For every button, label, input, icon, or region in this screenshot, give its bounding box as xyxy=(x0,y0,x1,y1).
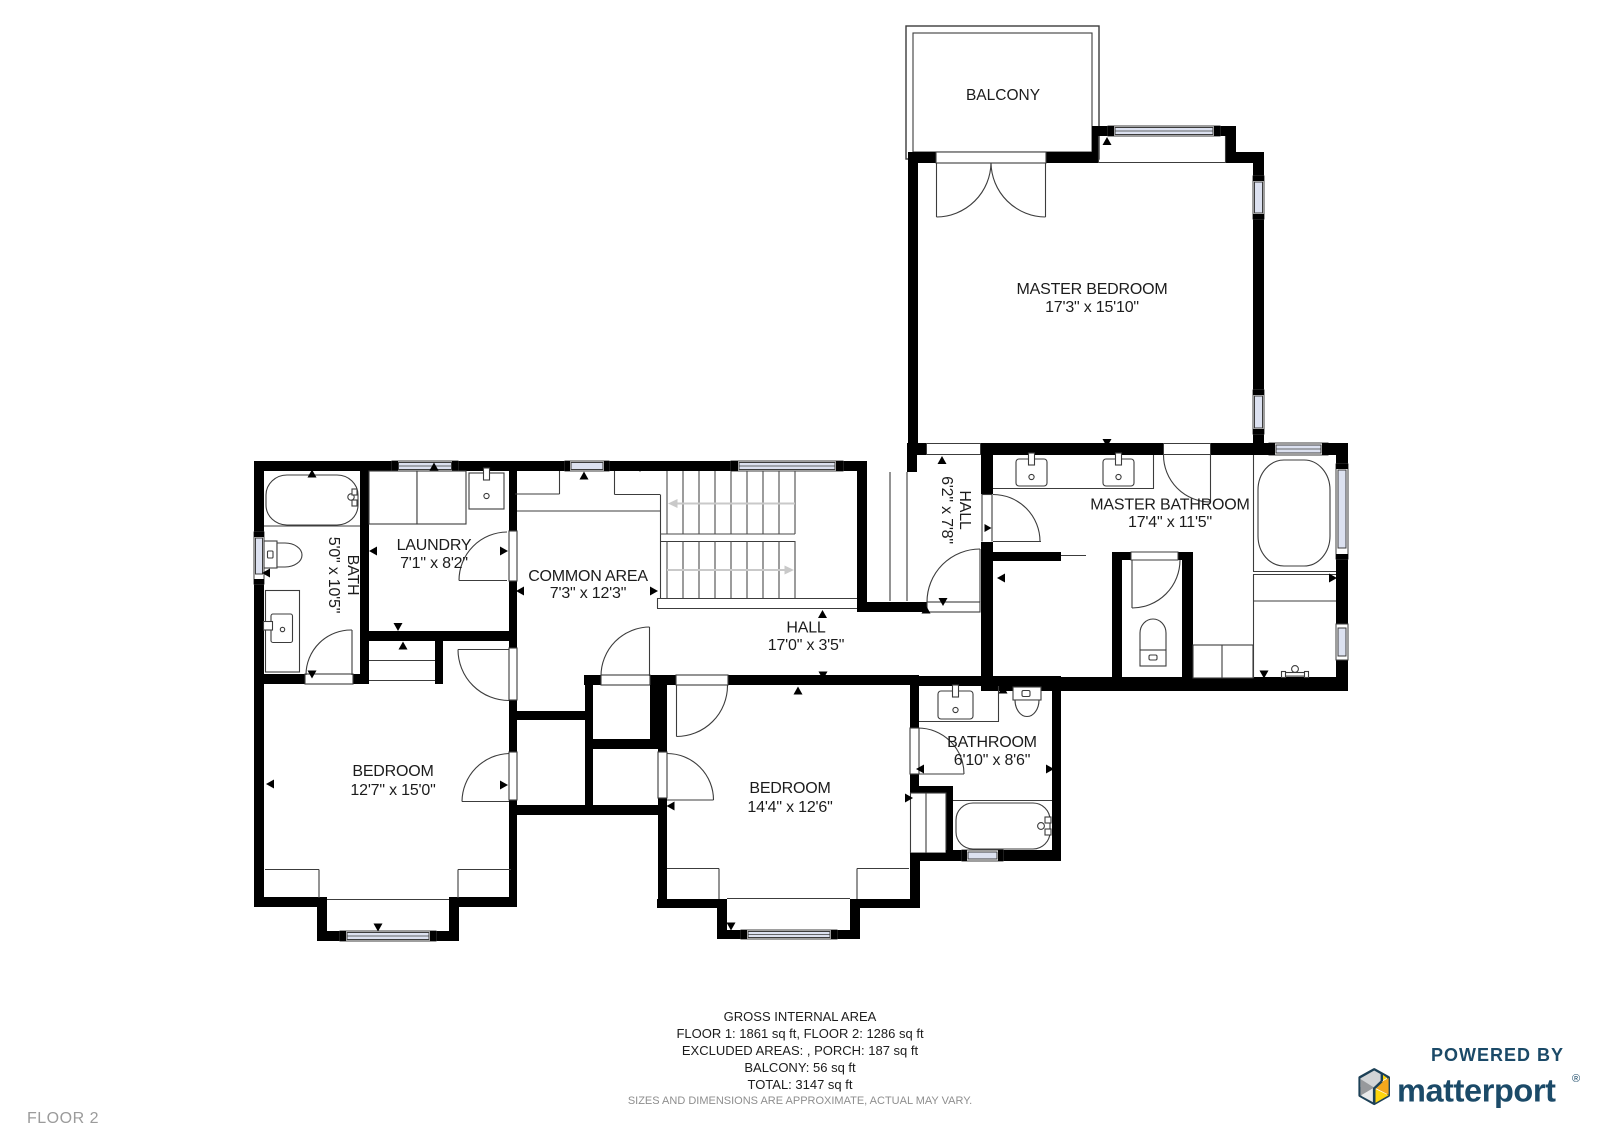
svg-text:COMMON AREA: COMMON AREA xyxy=(528,568,648,585)
svg-text:FLOOR 1: 1861 sq ft, FLOOR 2:: FLOOR 1: 1861 sq ft, FLOOR 2: 1286 sq ft xyxy=(676,1026,924,1041)
svg-text:BALCONY: 56 sq ft: BALCONY: 56 sq ft xyxy=(744,1060,856,1075)
svg-text:HALL: HALL xyxy=(956,490,973,530)
svg-text:GROSS INTERNAL AREA: GROSS INTERNAL AREA xyxy=(724,1009,877,1024)
svg-text:LAUNDRY: LAUNDRY xyxy=(397,537,472,554)
svg-text:17'3" x 15'10": 17'3" x 15'10" xyxy=(1045,299,1139,316)
svg-text:7'1" x 8'2": 7'1" x 8'2" xyxy=(400,555,468,572)
svg-text:BEDROOM: BEDROOM xyxy=(749,780,830,797)
svg-text:POWERED BY: POWERED BY xyxy=(1431,1045,1564,1065)
svg-text:matterport: matterport xyxy=(1397,1073,1556,1109)
svg-text:EXCLUDED AREAS: , PORCH: 187 s: EXCLUDED AREAS: , PORCH: 187 sq ft xyxy=(682,1043,919,1058)
svg-text:14'4" x 12'6": 14'4" x 12'6" xyxy=(747,799,832,816)
svg-text:12'7" x 15'0": 12'7" x 15'0" xyxy=(350,782,435,799)
svg-text:FLOOR 2: FLOOR 2 xyxy=(27,1110,99,1127)
svg-text:7'3" x 12'3": 7'3" x 12'3" xyxy=(550,585,626,602)
svg-text:BEDROOM: BEDROOM xyxy=(352,763,433,780)
svg-text:SIZES AND DIMENSIONS ARE APPRO: SIZES AND DIMENSIONS ARE APPROXIMATE, AC… xyxy=(628,1095,972,1107)
svg-text:6'2" x 7'8": 6'2" x 7'8" xyxy=(938,476,955,544)
svg-text:BATH: BATH xyxy=(344,555,361,596)
svg-text:17'4" x 11'5": 17'4" x 11'5" xyxy=(1128,514,1212,531)
svg-text:TOTAL: 3147 sq ft: TOTAL: 3147 sq ft xyxy=(747,1077,852,1092)
svg-text:HALL: HALL xyxy=(786,620,826,637)
svg-text:6'10" x 8'6": 6'10" x 8'6" xyxy=(954,752,1030,769)
svg-text:5'0" x 10'5": 5'0" x 10'5" xyxy=(325,537,342,613)
svg-text:®: ® xyxy=(1572,1073,1580,1085)
svg-text:MASTER BEDROOM: MASTER BEDROOM xyxy=(1017,281,1168,298)
svg-text:BATHROOM: BATHROOM xyxy=(947,734,1037,751)
svg-text:MASTER BATHROOM: MASTER BATHROOM xyxy=(1090,497,1249,514)
svg-text:BALCONY: BALCONY xyxy=(966,87,1040,104)
svg-text:17'0" x 3'5": 17'0" x 3'5" xyxy=(768,637,844,654)
